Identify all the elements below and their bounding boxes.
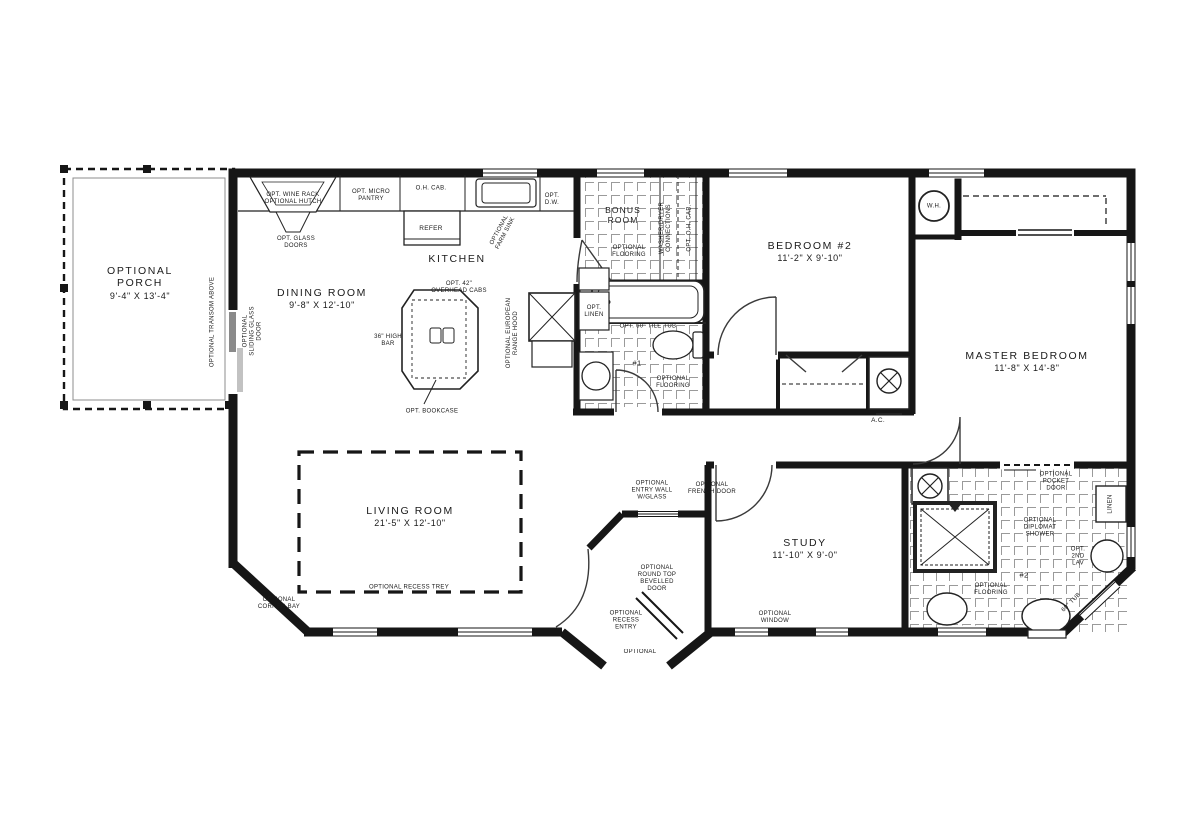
- bath2-lav: [1091, 540, 1123, 572]
- recess-entry-label: OPTIONAL RECESS ENTRY: [601, 610, 651, 631]
- glass-doors-label: OPT. GLASS DOORS: [273, 236, 319, 250]
- bedroom2-label: BEDROOM #2 11'-2" X 9'-10": [740, 240, 880, 264]
- micro-pantry-label: OPT. MICRO PANTRY: [351, 189, 391, 203]
- bedroom2-door: [718, 297, 776, 355]
- bath2-toilet-tank: [1028, 630, 1066, 638]
- study-label: STUDY 11'-10" X 9'-0": [730, 537, 880, 561]
- ac-unit: [869, 357, 909, 414]
- master-closet-rod: [963, 196, 1106, 228]
- recess-trey-label: OPTIONAL RECESS TREY: [329, 584, 489, 591]
- master-bedroom-door: [913, 417, 960, 464]
- living-room-label: LIVING ROOM 21'-5" X 12'-10": [335, 505, 485, 529]
- corner-bay-label: OPTIONAL CORNER BAY: [252, 597, 306, 611]
- kitchen-island: [402, 290, 478, 389]
- bath2-number: #2: [1014, 572, 1034, 581]
- second-lav-label: OPT. 2ND LAV: [1065, 546, 1091, 567]
- bookcase-label: OPT. BOOKCASE: [404, 408, 460, 415]
- porch-dims: 9'-4" X 13'-4": [94, 291, 186, 302]
- french-door-label: OPTIONAL FRENCH DOOR: [688, 482, 736, 496]
- optional-window-label: OPTIONAL WINDOW: [749, 611, 801, 625]
- range-hood-label: OPTIONAL EUROPEAN RANGE HOOD: [506, 293, 520, 373]
- diplomat-shower-label: OPTIONAL DIPLOMAT SHOWER: [1015, 517, 1065, 538]
- round-top-door-label: OPTIONAL ROUND TOP BEVELLED DOOR: [632, 565, 682, 593]
- entry-wall-label: OPTIONAL ENTRY WALL W/GLASS: [625, 480, 679, 501]
- porch-name: OPTIONAL PORCH: [94, 265, 186, 290]
- bath1-sink: [582, 362, 610, 390]
- dining-label: DINING ROOM 9'-8" X 12'-10": [261, 287, 383, 311]
- floor-plan-drawing: [0, 0, 1200, 818]
- kitchen-label: KITCHEN: [412, 253, 502, 265]
- sliding-door-panel-1: [229, 312, 236, 352]
- range: [532, 341, 572, 367]
- hutch-base: [276, 212, 310, 232]
- bath1-flooring-label: OPTIONAL FLOORING: [651, 376, 695, 390]
- bath2-flooring-label: OPTIONAL FLOORING: [969, 583, 1013, 597]
- high-bar-label: 36" HIGH BAR: [371, 334, 405, 348]
- pocket-door-label: OPTIONAL POCKET DOOR: [1034, 471, 1078, 492]
- refer-label: REFER: [406, 225, 456, 233]
- bonus-room-label: BONUS ROOM: [595, 205, 651, 225]
- oh-cab-label: O.H. CAB.: [401, 185, 461, 192]
- linen-label: LINEN: [1107, 489, 1114, 519]
- opt-linen-label: OPT. LINEN: [580, 305, 608, 319]
- porch-label: OPTIONAL PORCH 9'-4" X 13'-4": [94, 265, 186, 301]
- transom-label: OPTIONAL TRANSOM ABOVE: [209, 260, 216, 384]
- ac-label: A.C.: [863, 417, 893, 425]
- entry-door: [556, 549, 589, 627]
- dw-label: OPT. D.W.: [539, 193, 565, 207]
- master-bedroom-label: MASTER BEDROOM 11'-8" X 14'-8": [952, 350, 1102, 374]
- bonus-flooring-label: OPTIONAL FLOORING: [607, 245, 651, 259]
- wh-label: W.H.: [919, 203, 949, 210]
- bath1-number: #1: [627, 360, 647, 369]
- tile-tub-label: OPT. 60" TILE TUB: [588, 323, 708, 330]
- bedroom2-closet-walls: [778, 355, 868, 410]
- bath1-shelf-box: [579, 268, 609, 290]
- wd-label: WASHER/DRYER CONNECTIONS: [659, 180, 673, 276]
- entry-cutoff-label: OPTIONAL: [605, 649, 675, 657]
- wine-rack-label: OPT. WINE RACK OPTIONAL HUTCH: [256, 192, 330, 206]
- bath1-toilet-tank: [693, 332, 703, 358]
- overhead-cabs-label: OPT. 42" OVERHEAD CABS: [431, 281, 487, 295]
- entry-wall: [589, 514, 710, 548]
- bath1-toilet: [653, 331, 693, 359]
- floor-plan-canvas: OPTIONAL PORCH 9'-4" X 13'-4" OPTIONAL T…: [0, 0, 1200, 818]
- opt-oh-cab-label: OPT. O.H. CAB.: [686, 192, 693, 264]
- bath2-second-lav: [927, 593, 967, 625]
